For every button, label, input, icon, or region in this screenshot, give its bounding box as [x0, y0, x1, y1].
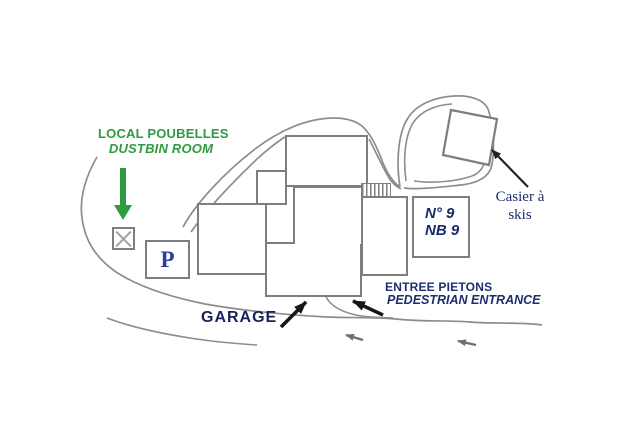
ski-locker-label-line2: skis	[486, 206, 554, 224]
building-number-line1: N° 9	[425, 205, 468, 222]
entrance-stairs	[361, 183, 391, 197]
building-upper-block	[285, 135, 368, 187]
building-step-block	[256, 170, 287, 205]
road-inner-line-right	[369, 139, 401, 189]
ski-locker-label: Casier à skis	[486, 188, 554, 224]
road-direction-arrow-2	[458, 341, 476, 345]
site-plan-map: N° 9 NB 9 P LOCAL POUBELLES DUSTBIN ROOM…	[0, 0, 640, 433]
pedestrian-entrance-label-en: PEDESTRIAN ENTRANCE	[387, 293, 541, 307]
building-left-annex	[197, 203, 267, 275]
ski-locker-arrow	[492, 150, 528, 187]
parking-label: P	[160, 247, 174, 273]
building-number-9: N° 9 NB 9	[412, 196, 470, 258]
road-direction-arrow-1	[346, 335, 363, 340]
parking-area: P	[145, 240, 190, 279]
garage-roof-edge	[265, 242, 295, 244]
dustbin-room-label-fr: LOCAL POUBELLES	[98, 126, 224, 141]
ski-locker-building	[443, 110, 497, 165]
dustbin-room-box	[112, 227, 135, 250]
building-right-wing	[361, 196, 408, 276]
ski-locker-label-line1: Casier à	[486, 188, 554, 206]
building-number-line2: NB 9	[425, 222, 468, 239]
building-middle-block	[293, 186, 364, 244]
dustbin-arrow	[114, 168, 132, 220]
garage-label: GARAGE	[201, 309, 277, 327]
pedestrian-entrance-arrow	[353, 301, 383, 315]
garage-building	[265, 242, 362, 297]
pedestrian-entrance-label-fr: ENTREE PIETONS	[385, 280, 492, 294]
dustbin-room-label-en: DUSTBIN ROOM	[98, 141, 224, 156]
